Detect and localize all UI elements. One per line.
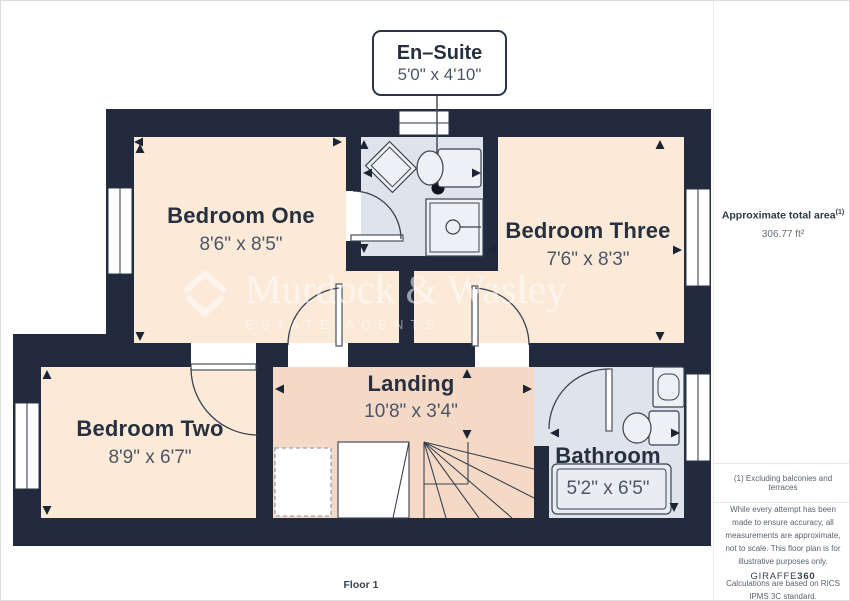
smallprint: While every attempt has been made to ens… bbox=[714, 503, 850, 601]
area-block: Approximate total area(1) 306.77 ft² bbox=[714, 209, 850, 240]
cupboard bbox=[275, 448, 331, 516]
toilet-icon bbox=[623, 411, 679, 445]
window-bedroom-one bbox=[108, 188, 132, 274]
window-top bbox=[399, 111, 449, 135]
ensuite-callout: En–Suite 5'0" x 4'10" bbox=[372, 30, 507, 96]
ensuite-callout-dims: 5'0" x 4'10" bbox=[398, 66, 482, 83]
shower-icon bbox=[426, 199, 483, 256]
room-bedroom-one-dims: 8'6" x 8'5" bbox=[199, 235, 282, 254]
toilet-icon bbox=[417, 149, 481, 187]
door-leaf-ensuite bbox=[351, 235, 403, 241]
area-footnote-marker: (1) bbox=[836, 209, 845, 216]
floorplan-page: Murdock & Wasley ESTATE AGENTS En–Suite … bbox=[0, 0, 850, 601]
room-bathroom-dims: 5'2" x 6'5" bbox=[566, 479, 649, 498]
brand-logo: GIRAFFE360 bbox=[714, 571, 850, 582]
sidebar: Approximate total area(1) 306.77 ft² (1)… bbox=[713, 1, 850, 601]
room-bedroom-two-dims: 8'9" x 6'7" bbox=[108, 448, 191, 467]
room-bedroom-three-name: Bedroom Three bbox=[505, 220, 670, 242]
room-bedroom-one-name: Bedroom One bbox=[167, 205, 315, 227]
window-bedroom-three bbox=[686, 189, 710, 286]
sink-icon bbox=[653, 367, 684, 407]
room-bedroom-two-name: Bedroom Two bbox=[76, 418, 223, 440]
door-leaf-bedroom-one bbox=[336, 284, 342, 346]
window-bathroom bbox=[686, 374, 710, 461]
door-leaf-bedroom-two bbox=[191, 364, 256, 370]
disclaimer-text: While every attempt has been made to ens… bbox=[723, 503, 843, 568]
floor-label: Floor 1 bbox=[317, 579, 405, 591]
room-landing-name: Landing bbox=[368, 373, 455, 395]
room-bedroom-three-dims: 7'6" x 8'3" bbox=[546, 250, 629, 269]
room-bathroom-name: Bathroom bbox=[555, 445, 661, 467]
window-bedroom-two bbox=[15, 403, 39, 489]
area-label: Approximate total area(1) bbox=[714, 209, 850, 222]
ensuite-callout-title: En–Suite bbox=[397, 43, 483, 63]
area-value: 306.77 ft² bbox=[714, 229, 850, 240]
door-leaf-bedroom-three bbox=[472, 286, 478, 346]
door-leaf-bathroom bbox=[606, 369, 612, 431]
room-landing-dims: 10'8" x 3'4" bbox=[364, 402, 458, 421]
bedroom-two-floor bbox=[41, 367, 256, 518]
footnote: (1) Excluding balconies and terraces bbox=[714, 463, 850, 503]
